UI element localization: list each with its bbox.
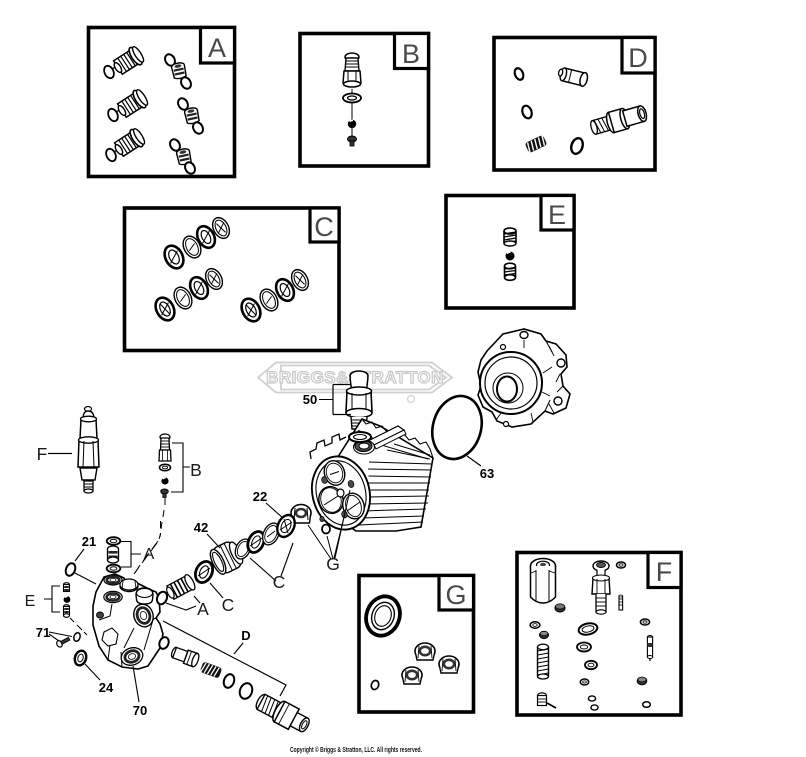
svg-text:A: A	[197, 599, 209, 619]
svg-text:42: 42	[194, 520, 208, 535]
svg-text:G: G	[326, 554, 340, 574]
svg-text:21: 21	[82, 534, 96, 549]
svg-text:F: F	[37, 444, 48, 464]
svg-text:E: E	[548, 200, 566, 230]
svg-text:50: 50	[303, 392, 317, 407]
svg-text:Copyright © Briggs & Stratton,: Copyright © Briggs & Stratton, LLC. All …	[290, 746, 422, 754]
svg-text:D: D	[628, 43, 648, 73]
svg-text:70: 70	[133, 703, 147, 718]
svg-text:22: 22	[253, 489, 267, 504]
svg-text:24: 24	[99, 680, 114, 695]
svg-text:D: D	[241, 628, 250, 643]
svg-text:A: A	[208, 33, 226, 63]
svg-text:G: G	[445, 580, 466, 610]
svg-text:E: E	[25, 593, 36, 610]
svg-text:B: B	[190, 460, 202, 480]
svg-text:C: C	[314, 212, 334, 242]
svg-text:A: A	[144, 546, 155, 563]
svg-text:F: F	[656, 557, 673, 587]
svg-text:C: C	[222, 595, 235, 615]
svg-text:C: C	[273, 572, 286, 592]
svg-text:63: 63	[480, 466, 494, 481]
svg-text:71: 71	[36, 625, 50, 640]
svg-text:B: B	[402, 39, 420, 69]
